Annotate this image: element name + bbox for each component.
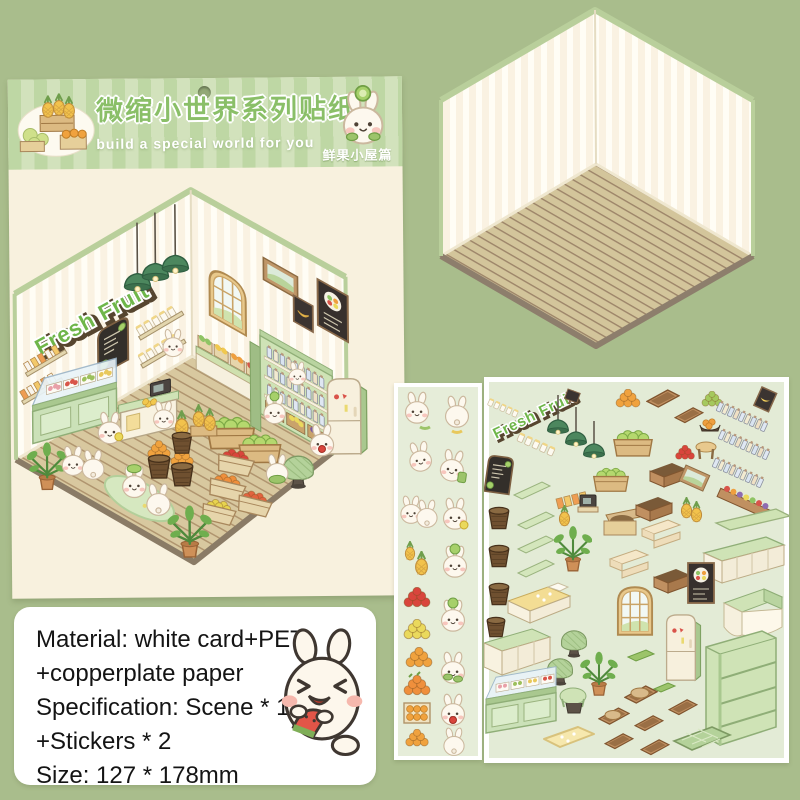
sheet-arched-window xyxy=(618,587,652,635)
product-card: 微缩小世界系列贴纸 build a special world for you … xyxy=(8,76,407,598)
page-background: 微缩小世界系列贴纸 build a special world for you … xyxy=(0,0,800,800)
spec-line-specification: Specification: Scene * 1 xyxy=(36,691,305,725)
sheet-basket-4 xyxy=(487,617,505,636)
sheet-fridge xyxy=(667,615,701,680)
sheet-basket xyxy=(489,507,508,528)
sheet-fruit-bowl-board xyxy=(688,563,714,603)
sheet-melon-crate xyxy=(614,431,652,456)
sheet-green-bookshelf xyxy=(706,631,776,745)
sheet-basket-2 xyxy=(489,545,508,566)
spec-line-material-2: +copperplate paper xyxy=(36,657,305,691)
sticker-strip xyxy=(394,383,482,760)
pineapple-crates-art xyxy=(16,93,97,158)
card-header-banner: 微缩小世界系列贴纸 build a special world for you … xyxy=(8,76,403,169)
sheet-basket-3 xyxy=(489,583,508,604)
empty-room-card xyxy=(430,4,762,356)
sheet-cash-register xyxy=(578,495,598,512)
spec-line-material: Material: white card+PET xyxy=(36,623,305,657)
watermelon-bunny xyxy=(270,623,374,769)
spec-line-stickers: +Stickers * 2 xyxy=(36,725,305,759)
bunny-kiwi-badge xyxy=(338,84,389,146)
strip-background xyxy=(398,387,478,756)
sheet-melon-crate-2 xyxy=(594,468,629,491)
product-subtitle: build a special world for you xyxy=(96,134,314,152)
sheet-menu-blackboard xyxy=(484,455,514,494)
edition-label: 鲜果小屋篇 xyxy=(322,144,392,164)
spec-line-size: Size: 127 * 178mm xyxy=(36,759,305,793)
sticker-orange-crate xyxy=(404,703,430,723)
fruit-shop-scene: Fresh Fruit Fresh Fruit xyxy=(9,166,407,598)
info-box: Material: white card+PET +copperplate pa… xyxy=(14,607,376,785)
sticker-sheet: Fresh Fruit Fresh Fruit xyxy=(484,377,789,763)
spec-text: Material: white card+PET +copperplate pa… xyxy=(36,623,305,793)
product-title: 微缩小世界系列贴纸 xyxy=(96,87,314,128)
